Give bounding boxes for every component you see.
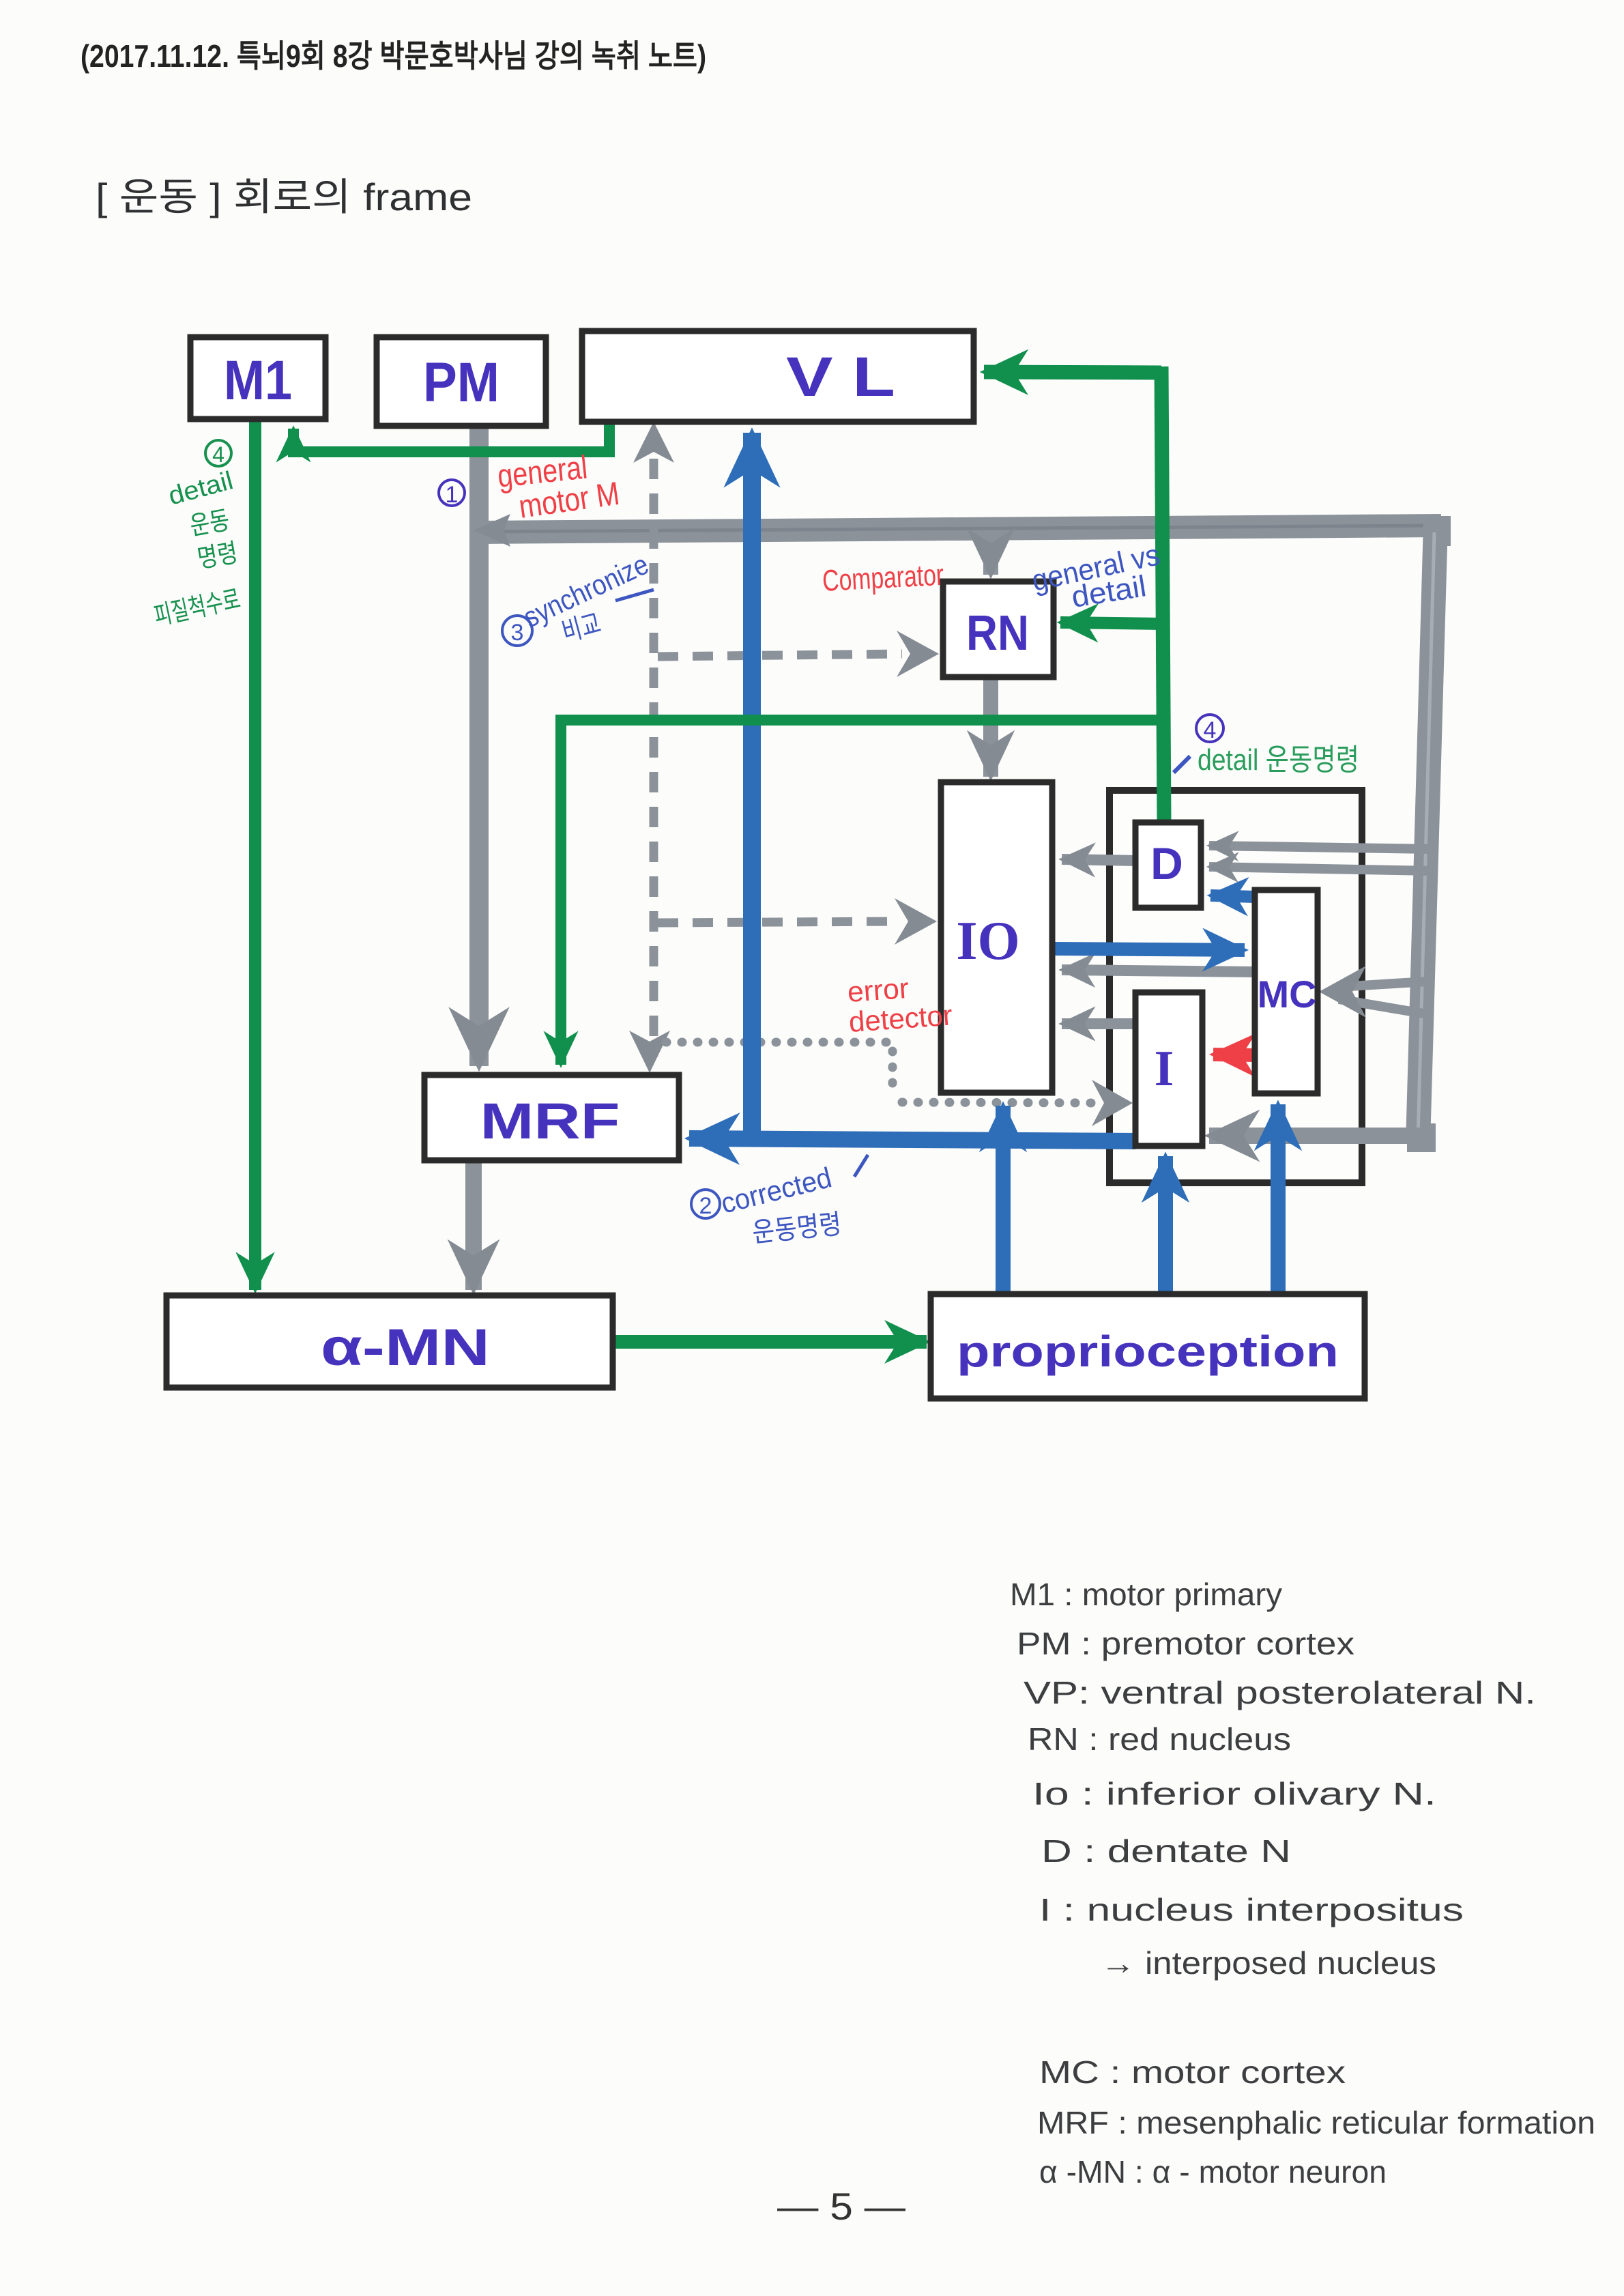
- svg-text:1: 1: [446, 482, 459, 508]
- svg-text:V L: V L: [786, 346, 895, 408]
- svg-text:2: 2: [699, 1193, 712, 1219]
- svg-text:α-MN: α-MN: [321, 1319, 490, 1377]
- svg-text:M1: M1: [224, 349, 292, 412]
- svg-text:4: 4: [1204, 717, 1217, 743]
- svg-text:→ interposed nucleus: → interposed nucleus: [1101, 1945, 1436, 1981]
- svg-text:PM: PM: [423, 351, 499, 414]
- svg-text:Io : inferior olivary N.: Io : inferior olivary N.: [1032, 1776, 1436, 1811]
- svg-text:[ 운동 ] 회로의 frame: [ 운동 ] 회로의 frame: [96, 175, 472, 218]
- svg-text:I : nucleus interpositus: I : nucleus interpositus: [1039, 1892, 1464, 1927]
- svg-text:Comparator: Comparator: [822, 558, 944, 598]
- svg-text:VP: ventral posterolateral N.: VP: ventral posterolateral N.: [1024, 1675, 1536, 1710]
- svg-text:α -MN : α - motor neuron: α -MN : α - motor neuron: [1039, 2154, 1387, 2190]
- svg-text:PM : premotor cortex: PM : premotor cortex: [1017, 1626, 1354, 1661]
- svg-text:I: I: [1155, 1041, 1174, 1097]
- svg-text:proprioception: proprioception: [957, 1327, 1339, 1376]
- svg-text:IO: IO: [956, 911, 1019, 971]
- svg-text:MC: MC: [1257, 973, 1316, 1016]
- svg-text:detail 운동명령: detail 운동명령: [1198, 743, 1359, 777]
- svg-text:D: D: [1150, 838, 1183, 889]
- svg-text:MC : motor cortex: MC : motor cortex: [1039, 2054, 1346, 2090]
- svg-text:(2017.11.12. 특뇌9회 8강 박문호박사님 강의: (2017.11.12. 특뇌9회 8강 박문호박사님 강의 녹취 노트): [81, 38, 706, 74]
- svg-text:3: 3: [511, 620, 524, 646]
- svg-text:RN : red nucleus: RN : red nucleus: [1028, 1721, 1291, 1757]
- svg-text:MRF : mesenphalic reticular fo: MRF : mesenphalic reticular formation: [1037, 2105, 1595, 2140]
- svg-text:MRF: MRF: [480, 1093, 620, 1149]
- svg-text:4: 4: [212, 442, 224, 467]
- svg-text:RN: RN: [966, 606, 1029, 661]
- svg-text:D : dentate N: D : dentate N: [1041, 1833, 1291, 1869]
- svg-text:M1 : motor primary: M1 : motor primary: [1010, 1577, 1282, 1612]
- svg-text:— 5 —: — 5 —: [777, 2185, 905, 2228]
